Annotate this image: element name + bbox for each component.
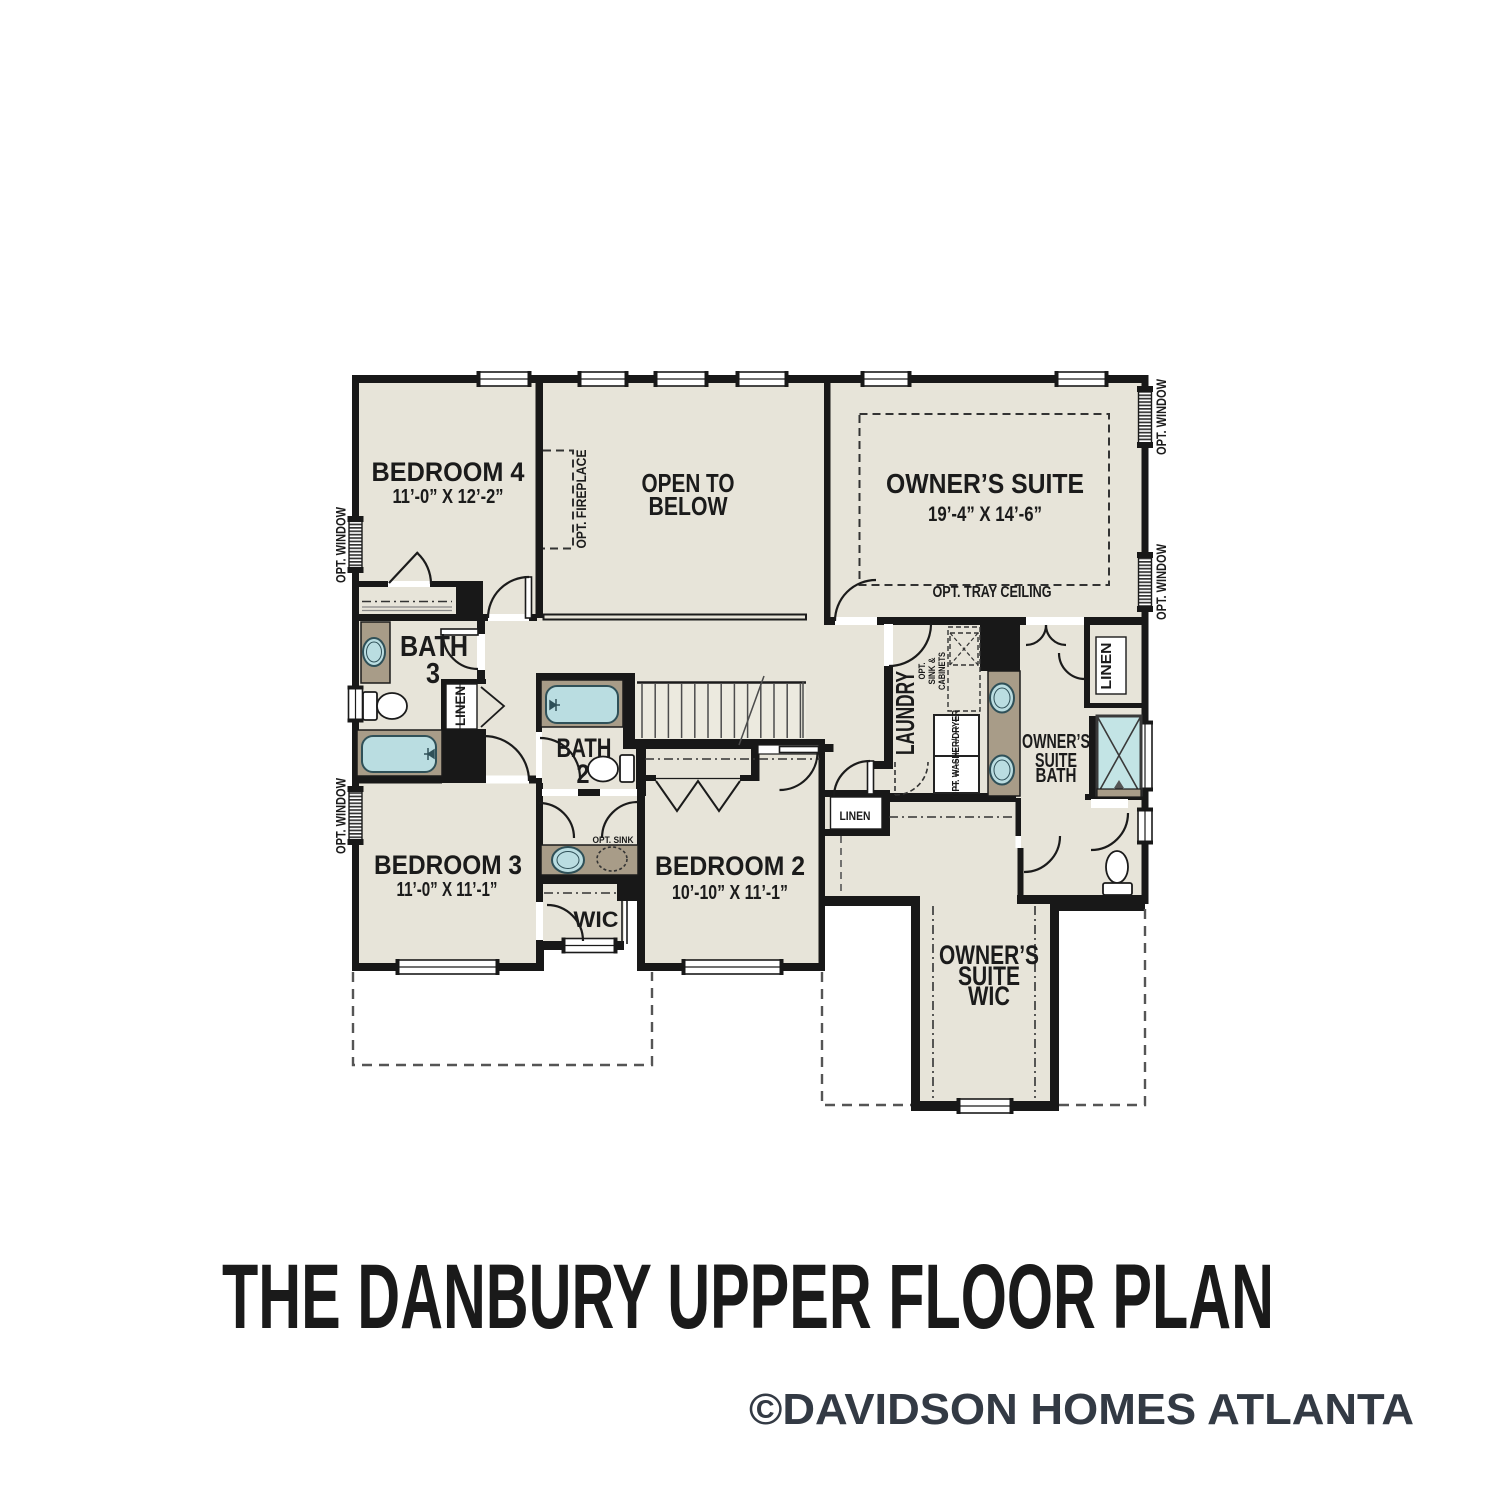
- svg-text:LINEN: LINEN: [840, 811, 871, 823]
- svg-text:10’-10” X 11’-1”: 10’-10” X 11’-1”: [672, 882, 788, 904]
- svg-text:11’-0” X 11’-1”: 11’-0” X 11’-1”: [397, 879, 498, 901]
- svg-text:19’-4” X 14’-6”: 19’-4” X 14’-6”: [928, 503, 1042, 526]
- svg-text:WIC: WIC: [574, 907, 619, 932]
- svg-text:LINEN: LINEN: [1098, 643, 1115, 690]
- svg-text:BEDROOM 4: BEDROOM 4: [372, 457, 525, 487]
- svg-text:BEDROOM 2: BEDROOM 2: [655, 851, 805, 881]
- svg-text:LINEN: LINEN: [452, 686, 468, 726]
- svg-text:OWNER’S SUITE: OWNER’S SUITE: [886, 468, 1084, 499]
- svg-text:OPT. WINDOW: OPT. WINDOW: [334, 507, 349, 583]
- svg-text:THE DANBURY UPPER FLOOR PLAN: THE DANBURY UPPER FLOOR PLAN: [222, 1246, 1274, 1348]
- svg-text:3: 3: [426, 658, 440, 690]
- svg-text:OPT. WASHER/DRYER: OPT. WASHER/DRYER: [951, 709, 962, 798]
- svg-text:LAUNDRY: LAUNDRY: [890, 671, 920, 755]
- svg-text:OPT. FIREPLACE: OPT. FIREPLACE: [574, 450, 589, 549]
- svg-text:BEDROOM 3: BEDROOM 3: [374, 850, 522, 880]
- svg-text:OPT. WINDOW: OPT. WINDOW: [1154, 379, 1169, 455]
- svg-text:OPT. TRAY CEILING: OPT. TRAY CEILING: [933, 584, 1052, 601]
- svg-text:OPT. WINDOW: OPT. WINDOW: [1154, 544, 1169, 620]
- svg-text:2: 2: [577, 759, 590, 789]
- svg-text:BATH: BATH: [1036, 765, 1077, 787]
- svg-text:BELOW: BELOW: [649, 491, 728, 521]
- svg-text:©DAVIDSON HOMES ATLANTA: ©DAVIDSON HOMES ATLANTA: [749, 1385, 1414, 1434]
- svg-text:OPT. WINDOW: OPT. WINDOW: [334, 778, 349, 854]
- svg-text:11’-0” X 12’-2”: 11’-0” X 12’-2”: [393, 486, 504, 508]
- svg-text:CABINETS: CABINETS: [937, 652, 948, 690]
- svg-text:WIC: WIC: [968, 981, 1010, 1011]
- svg-text:OPT. SINK: OPT. SINK: [593, 835, 634, 845]
